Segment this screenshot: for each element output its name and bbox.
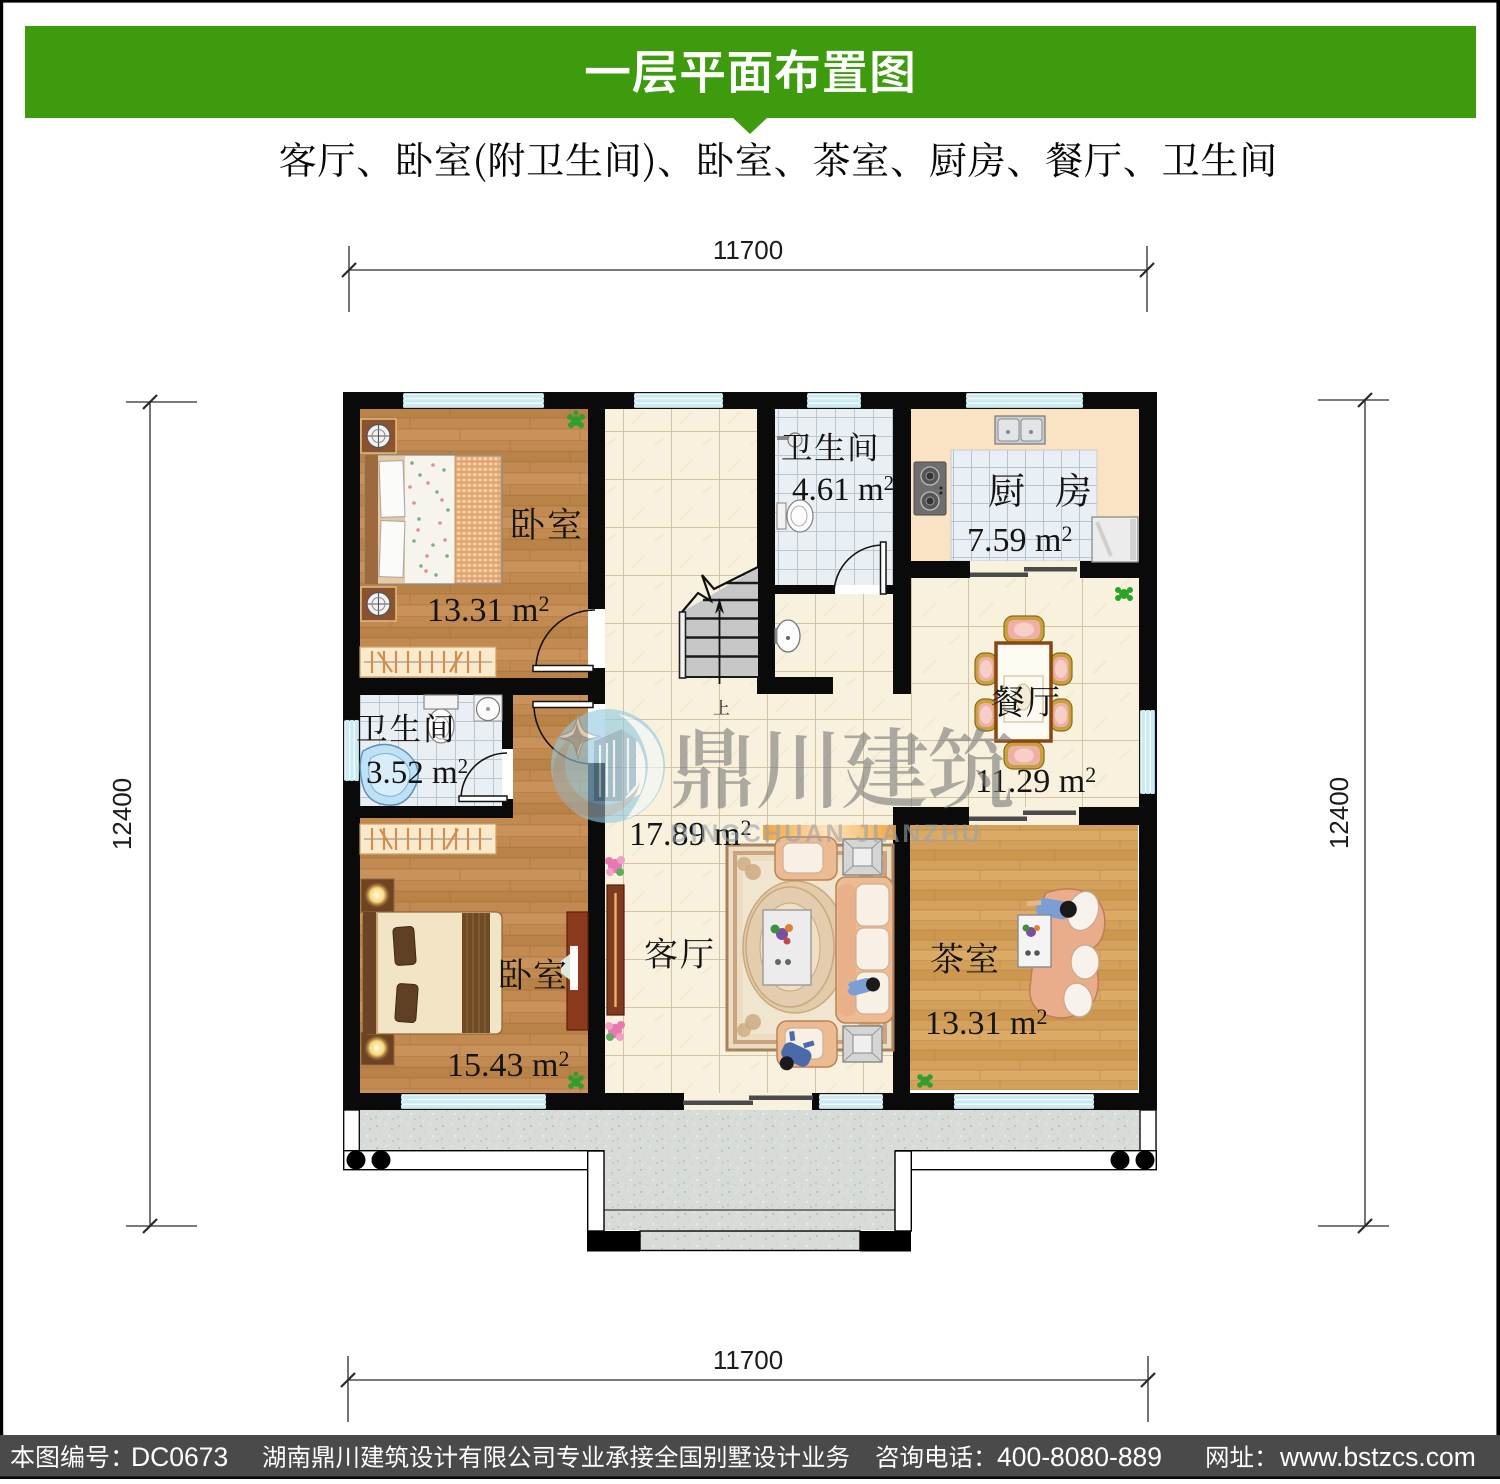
- svg-text:www.bstzcs.com: www.bstzcs.com: [1279, 1442, 1476, 1472]
- svg-text:400-8080-889: 400-8080-889: [997, 1442, 1162, 1472]
- svg-text:7.59 m2: 7.59 m2: [967, 521, 1072, 559]
- svg-text:15.43 m2: 15.43 m2: [447, 1046, 569, 1084]
- svg-text:3.52 m2: 3.52 m2: [366, 754, 468, 791]
- svg-text:12400: 12400: [1324, 777, 1354, 849]
- svg-text:13.31 m2: 13.31 m2: [427, 591, 549, 629]
- svg-text:11700: 11700: [713, 1345, 783, 1375]
- svg-text:11700: 11700: [713, 235, 783, 265]
- svg-text:DINGCHUAN JIANZHU: DINGCHUAN JIANZHU: [670, 820, 982, 848]
- svg-text:13.31 m2: 13.31 m2: [925, 1004, 1047, 1042]
- svg-text:4.61 m2: 4.61 m2: [792, 471, 894, 508]
- svg-text:DC0673: DC0673: [131, 1442, 228, 1472]
- svg-text:12400: 12400: [107, 778, 137, 850]
